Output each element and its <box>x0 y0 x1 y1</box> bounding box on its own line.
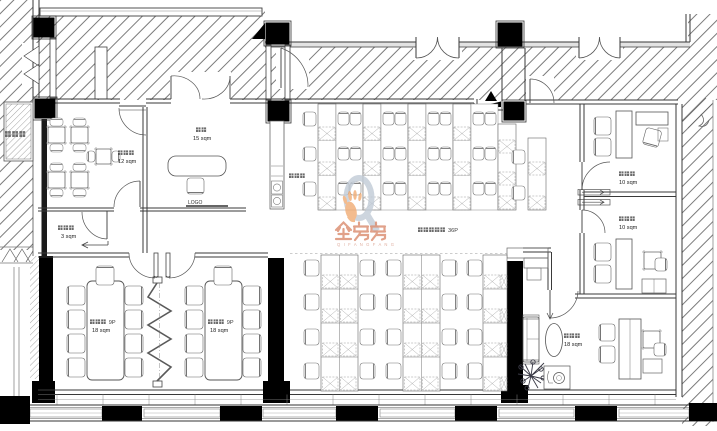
svg-text:18 sqm: 18 sqm <box>92 328 111 334</box>
svg-text:15 sqm: 15 sqm <box>193 136 212 142</box>
svg-text:LOGO: LOGO <box>188 200 203 206</box>
svg-text:9P: 9P <box>227 320 234 326</box>
svg-text:18 sqm: 18 sqm <box>210 328 229 334</box>
svg-text:36P: 36P <box>448 228 458 234</box>
svg-text:12 sqm: 12 sqm <box>118 159 137 165</box>
svg-text:Q I F A N G F A N G: Q I F A N G F A N G <box>337 242 395 247</box>
svg-text:10 sqm: 10 sqm <box>619 180 638 186</box>
svg-text:3 sqm: 3 sqm <box>61 234 77 240</box>
svg-text:9P: 9P <box>109 320 116 326</box>
svg-text:10 sqm: 10 sqm <box>619 225 638 231</box>
svg-text:18 sqm: 18 sqm <box>564 342 583 348</box>
